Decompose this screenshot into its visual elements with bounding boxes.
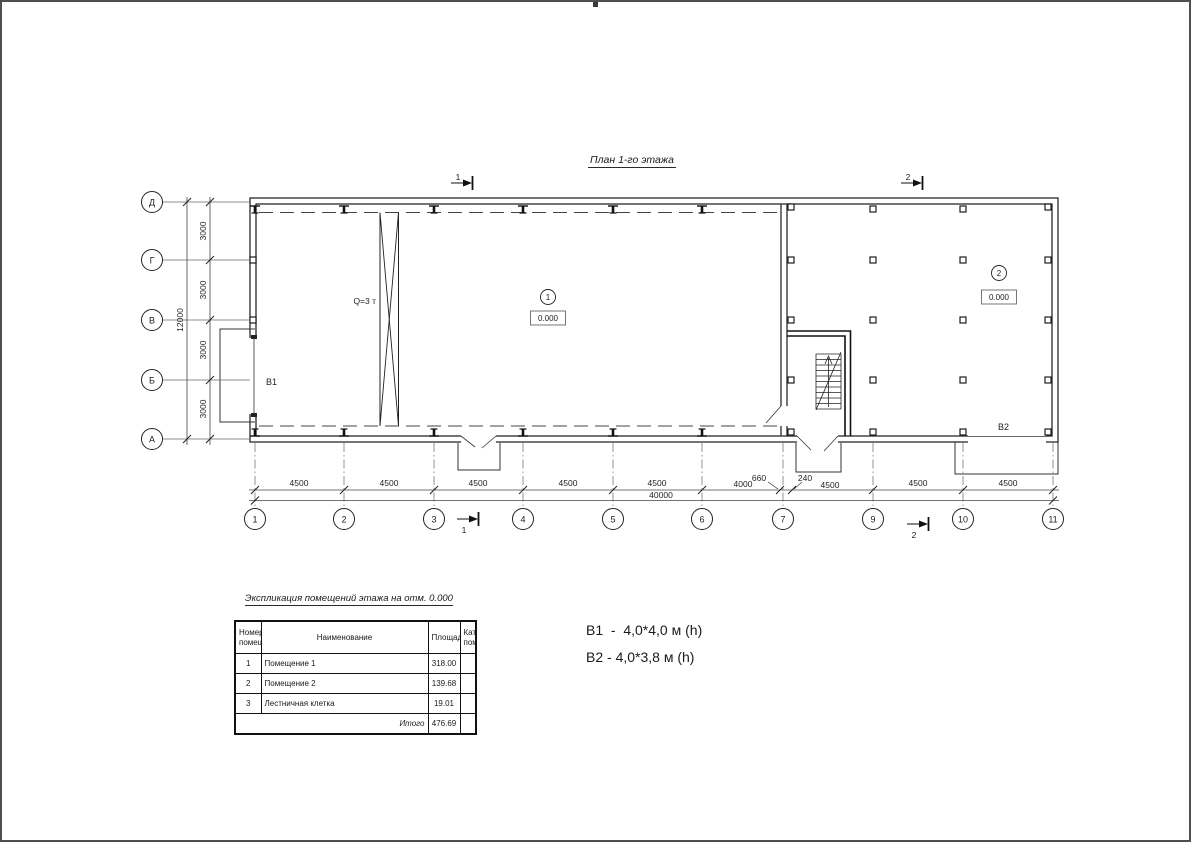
axis-row-v: В [142,310,163,331]
cell-area: 19.01 [428,694,460,714]
drawing-sheet: План 1-го этажа [0,0,1191,842]
room-1-elevation: 0.000 [538,314,559,323]
room-2-number: 2 [997,269,1002,278]
dim-label: 4500 [469,478,488,488]
explication-block: Экспликация помещений этажа на отм. 0.00… [234,588,494,735]
dim-label: 4500 [559,478,578,488]
steel-columns [250,206,707,436]
svg-text:2: 2 [341,515,346,525]
svg-text:Б: Б [149,376,155,386]
svg-text:Г: Г [150,256,155,266]
cell-area: 139.68 [428,674,460,694]
col-header-area: Площадь [428,621,460,654]
svg-text:7: 7 [780,515,785,525]
dim-label: 4500 [648,478,667,488]
axis-row-a: А [142,429,163,450]
dim-label: 3000 [198,399,208,418]
staircase [816,352,841,410]
legend-line-b2: В2 - 4,0*3,8 м (h) [586,649,702,665]
axis-col-4: 4 [513,509,534,530]
bottom-dimension-labels: 4500 4500 4500 4500 4500 4000 660 240 45… [290,473,1018,500]
entrance-porch-1 [458,443,500,470]
axis-col-5: 5 [603,509,624,530]
axis-col-11: 11 [1043,509,1064,530]
axis-row-g: Г [142,250,163,271]
dim-label: 3000 [198,221,208,240]
col-header-number: Номер помещ. [235,621,261,654]
svg-text:3: 3 [431,515,436,525]
axis-col-1: 1 [245,509,266,530]
wall-openings [247,338,1046,444]
opening-details [254,338,1046,451]
dim-label: 4500 [290,478,309,488]
concrete-columns [250,204,1051,435]
section-mark-2-bottom: 2 [907,517,929,540]
section-mark-2-top: 2 [901,172,923,190]
dim-label: 240 [798,473,812,483]
svg-text:5: 5 [610,515,615,525]
crane-capacity-label: Q=3 т [353,296,376,306]
axis-row-d: Д [142,192,163,213]
dim-label: 3000 [198,340,208,359]
section-1-label-top: 1 [456,172,461,182]
dim-label: 4500 [999,478,1018,488]
svg-text:1: 1 [252,515,257,525]
dim-total-label: 40000 [649,490,673,500]
table-total-row: Итого 476.69 [235,714,476,735]
section-mark-1-top: 1 [451,172,473,190]
table-row: 1 Помещение 1 318.00 [235,654,476,674]
cell-number: 1 [235,654,261,674]
gate-legend: В1 - 4,0*4,0 м (h) В2 - 4,0*3,8 м (h) [586,622,702,676]
svg-text:А: А [149,435,155,445]
svg-text:В: В [149,316,155,326]
svg-text:9: 9 [870,515,875,525]
row-axis-bubbles: Д Г В Б А [142,192,163,450]
room-2-tag: 2 0.000 [982,266,1017,305]
external-structures [220,329,1058,474]
svg-text:4: 4 [520,515,525,525]
dim-total-label: 12000 [175,308,185,332]
svg-text:11: 11 [1048,515,1057,525]
section-2-label-top: 2 [906,172,911,182]
col-header-name: Наименование [261,621,428,654]
axis-col-6: 6 [692,509,713,530]
entrance-porch-2 [796,443,841,472]
table-row: 2 Помещение 2 139.68 [235,674,476,694]
building-walls [250,198,1058,442]
gate-b2-label: В2 [998,422,1009,432]
dim-label: 4500 [909,478,928,488]
axis-col-2: 2 [334,509,355,530]
floor-plan-drawing: Q=3 т [2,2,1191,842]
room-1-number: 1 [546,293,551,302]
crane-runway: Q=3 т [259,213,778,427]
table-header-row: Номер помещ. Наименование Площадь Кат. п… [235,621,476,654]
section-mark-1-bottom: 1 [457,512,479,535]
svg-text:6: 6 [699,515,704,525]
section-2-label-bottom: 2 [912,530,917,540]
dim-label: 4500 [380,478,399,488]
total-label: Итого [235,714,428,735]
svg-text:10: 10 [958,515,968,525]
cell-category [460,654,476,674]
loading-platform [955,442,1058,474]
total-value: 476.69 [428,714,460,735]
dim-label: 4500 [821,480,840,490]
dim-label: 3000 [198,280,208,299]
cell-name: Помещение 2 [261,674,428,694]
cell-category [460,674,476,694]
col-header-category: Кат. пом. [460,621,476,654]
axis-row-b: Б [142,370,163,391]
explication-title: Экспликация помещений этажа на отм. 0.00… [245,593,453,606]
table-row: 3 Лестничная клетка 19.01 [235,694,476,714]
cell-number: 3 [235,694,261,714]
axis-col-7: 7 [773,509,794,530]
cell-area: 318.00 [428,654,460,674]
axis-col-10: 10 [953,509,974,530]
cell-number: 2 [235,674,261,694]
room-1-tag: 1 0.000 [531,290,566,326]
svg-text:Д: Д [149,198,155,208]
column-axis-bubbles: 1 2 3 4 5 6 7 9 10 11 [245,509,1064,530]
gate-b1-label: В1 [266,377,277,387]
total-category [460,714,476,735]
axis-col-9: 9 [863,509,884,530]
legend-line-b1: В1 - 4,0*4,0 м (h) [586,622,702,638]
dim-label: 4000 [734,479,753,489]
cell-category [460,694,476,714]
cell-name: Лестничная клетка [261,694,428,714]
cell-name: Помещение 1 [261,654,428,674]
explication-table: Номер помещ. Наименование Площадь Кат. п… [234,620,477,735]
axis-col-3: 3 [424,509,445,530]
dim-label: 660 [752,473,766,483]
section-1-label-bottom: 1 [462,525,467,535]
room-2-elevation: 0.000 [989,293,1010,302]
